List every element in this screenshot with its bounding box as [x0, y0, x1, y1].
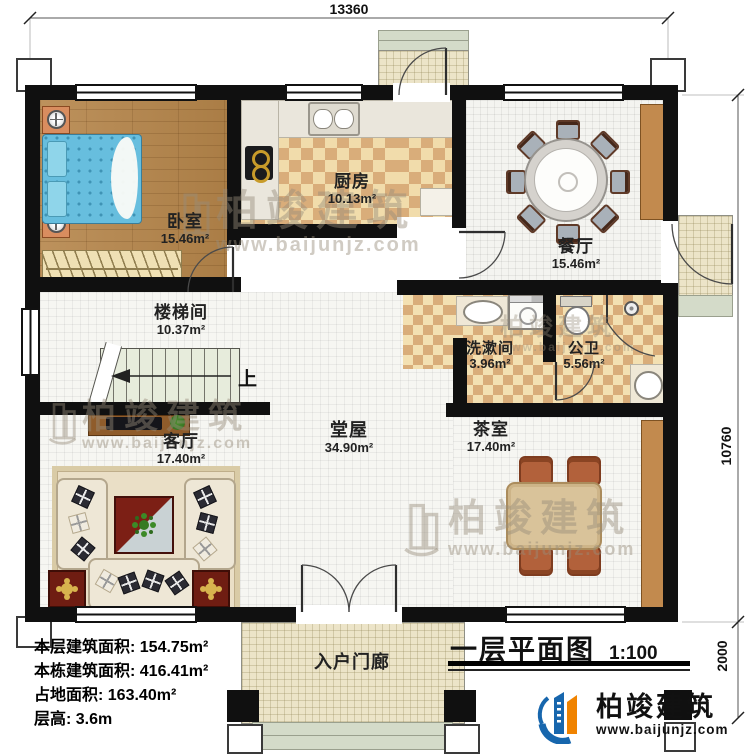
entry-porch-floor: [241, 622, 465, 724]
porch-pier-left-base: [227, 724, 263, 754]
pillow: [47, 141, 67, 177]
bed: [42, 134, 142, 224]
room-label-kitchen: 厨房 10.13m²: [328, 172, 376, 206]
washbasin: [463, 300, 503, 324]
dim-label-top: 13360: [309, 1, 389, 17]
washer-drum: [519, 307, 537, 325]
cushion: [71, 485, 95, 509]
dim-tick: [662, 12, 674, 24]
side-table-right: [192, 570, 230, 608]
cushion: [196, 512, 218, 534]
window-stairwell-left: [21, 308, 40, 376]
dim-tick: [732, 89, 744, 101]
dim-tick: [732, 616, 744, 628]
room-label-stairwell: 楼梯间 10.37m²: [154, 303, 208, 337]
side-porch-floor: [678, 215, 733, 297]
window-kitchen-top: [285, 84, 363, 101]
toilet-bowl: [564, 306, 590, 335]
window-dining-top: [503, 84, 624, 101]
info-line: 本栋建筑面积: 416.41m²: [34, 660, 208, 684]
dining-chair: [556, 120, 580, 140]
stairs-up-label: 上: [238, 364, 257, 391]
washroom-counter: [456, 296, 508, 326]
room-label-entry-porch: 入户门廊: [314, 652, 390, 673]
bed-sheet-fold: [111, 137, 138, 219]
sofa-bottom: [88, 558, 200, 610]
tea-chair: [519, 546, 553, 576]
sink-basin: [313, 109, 333, 129]
room-label-bathroom: 公卫 5.56m²: [563, 340, 604, 372]
info-line: 占地面积: 163.40m²: [34, 684, 208, 708]
cushion: [95, 569, 120, 594]
brand-block: 柏竣建筑 www.baijunjz.com: [534, 686, 729, 744]
flower-icon: [61, 583, 73, 595]
brand-logo-icon: [534, 686, 588, 744]
dim-label-right-porch: 2000: [714, 620, 730, 692]
washroom-entry-floor: [403, 295, 453, 369]
shower-head-icon: [624, 301, 639, 316]
title-underline-thin: [448, 669, 690, 671]
stove: [245, 146, 273, 180]
room-label-living: 客厅 17.40m²: [157, 432, 205, 466]
cushion: [68, 512, 90, 534]
dining-chair: [506, 170, 526, 194]
back-door-opening: [393, 83, 450, 102]
porch-pier-right: [444, 690, 476, 722]
bath-vanity: [630, 364, 665, 405]
side-door-opening: [661, 221, 678, 283]
tv: [106, 417, 162, 430]
wall-bedroom-bottom: [25, 277, 241, 292]
tea-chair: [567, 546, 601, 576]
fridge: [420, 188, 454, 216]
dim-label-right-main: 10760: [718, 404, 734, 488]
wall-bath-bottom: [446, 403, 663, 417]
coffee-table: [114, 496, 174, 554]
side-porch-step: [678, 295, 733, 317]
window-living-bottom: [75, 606, 197, 623]
title-underline-thick: [448, 661, 690, 666]
side-table-left: [48, 570, 86, 608]
wall-washroom-left: [453, 338, 467, 405]
room-label-washroom: 洗漱间 3.96m²: [466, 340, 514, 372]
washing-machine: [508, 294, 548, 330]
staircase: [100, 348, 240, 405]
room-label-tearoom: 茶室 17.40m²: [467, 420, 515, 454]
porch-pier-right-base: [444, 724, 480, 754]
wall-stair-living: [25, 402, 270, 415]
window-tearoom-bottom: [505, 606, 626, 623]
wall-dining-bottom: [397, 280, 678, 295]
nightstand-top: [42, 106, 70, 134]
washer-panel: [510, 296, 546, 303]
burner-icon: [252, 165, 270, 183]
dining-table-center: [558, 172, 578, 192]
area-info-block: 本层建筑面积: 154.75m² 本栋建筑面积: 416.41m² 占地面积: …: [34, 636, 208, 732]
dining-sideboard: [640, 104, 665, 220]
cushion: [193, 485, 217, 509]
pillow: [47, 181, 67, 217]
floor-plan-canvas: 卧室 15.46m² 厨房 10.13m² 餐厅 15.46m² 楼梯间 10.…: [0, 0, 750, 756]
room-label-bedroom: 卧室 15.46m²: [161, 212, 209, 246]
dim-tick: [24, 12, 36, 24]
tea-table: [506, 482, 602, 550]
window-bedroom-top: [75, 84, 197, 101]
sofa-right: [184, 478, 236, 570]
entry-step-2: [258, 735, 447, 750]
info-line: 本层建筑面积: 154.75m²: [34, 636, 208, 660]
vanity-basin: [634, 371, 663, 400]
porch-pier-left: [227, 690, 259, 722]
tearoom-cabinet: [641, 420, 665, 608]
dining-chair: [610, 170, 630, 194]
wall-bedroom-right: [227, 85, 241, 245]
sofa-left: [56, 478, 108, 570]
entry-door-opening: [296, 605, 402, 624]
kitchen-sink: [308, 102, 360, 136]
plant-icon: [139, 520, 149, 530]
cushion: [117, 571, 140, 594]
flower-icon: [205, 583, 217, 595]
brand-url: www.baijunjz.com: [596, 722, 729, 737]
room-label-dining: 餐厅 15.46m²: [552, 237, 600, 271]
cushion: [192, 536, 217, 561]
room-label-hall: 堂屋 34.90m²: [325, 420, 373, 456]
wall-wash-bath-divider: [543, 295, 556, 362]
shower-screen: [606, 295, 608, 323]
plant-small: [170, 415, 185, 430]
cushion: [141, 569, 164, 592]
dim-tick: [732, 712, 744, 724]
cushion: [164, 570, 189, 595]
lamp-icon: [47, 110, 66, 129]
wall-right: [663, 85, 678, 622]
info-line: 层高: 3.6m: [34, 708, 208, 732]
wall-kitchen-dining: [452, 85, 466, 228]
brand-name: 柏竣建筑: [596, 693, 729, 721]
dining-set: [524, 138, 608, 222]
sink-basin: [334, 109, 354, 129]
wall-kitchen-bottom: [241, 224, 397, 238]
